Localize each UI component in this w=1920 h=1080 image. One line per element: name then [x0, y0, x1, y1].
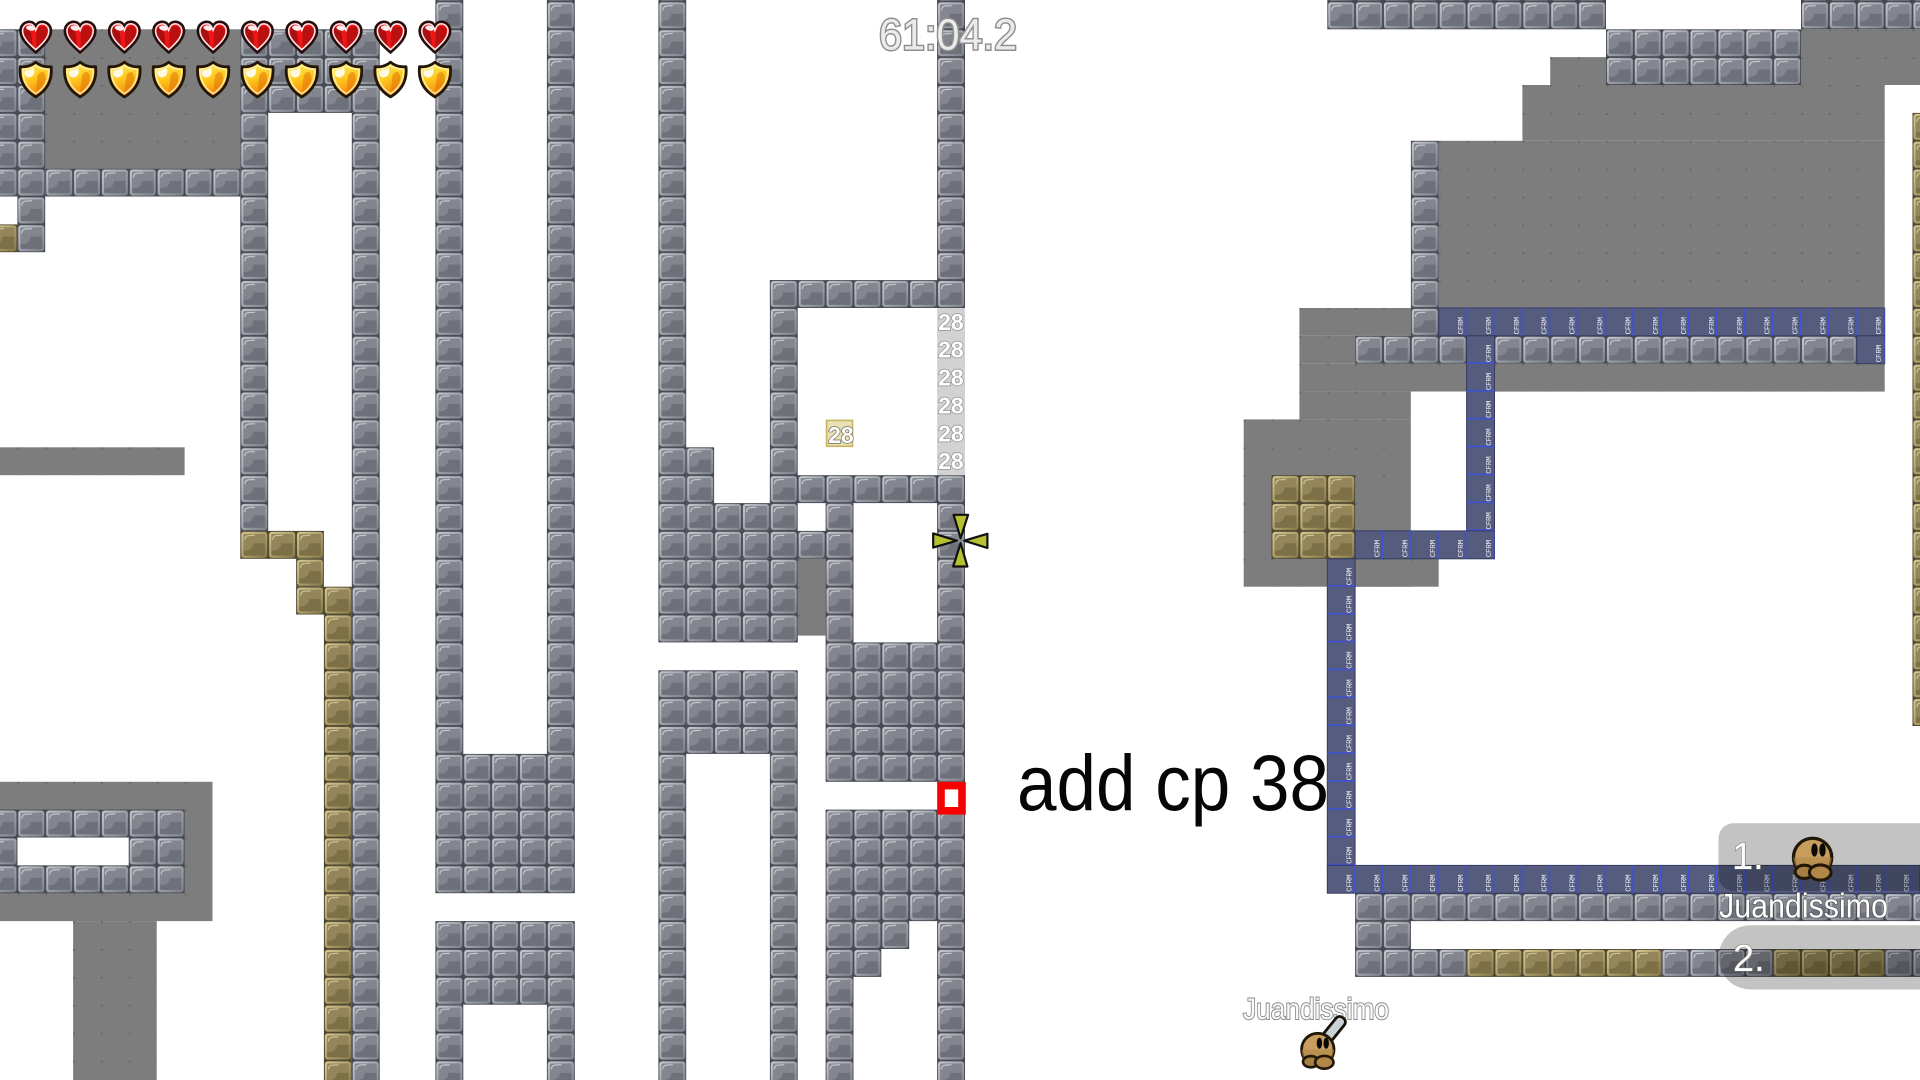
svg-text:CFRM: CFRM [1347, 874, 1355, 892]
svg-text:CFRM: CFRM [1542, 874, 1550, 892]
svg-text:CFRM: CFRM [1375, 874, 1383, 892]
svg-text:Juandissimo: Juandissimo [1719, 888, 1888, 926]
svg-text:1.: 1. [1732, 836, 1764, 878]
svg-text:CFRM: CFRM [1402, 874, 1410, 892]
svg-text:CFRM: CFRM [1347, 735, 1355, 753]
svg-text:CFRM: CFRM [1793, 317, 1801, 335]
svg-text:CFRM: CFRM [1486, 344, 1494, 362]
svg-text:Juandissimo: Juandissimo [1243, 993, 1389, 1026]
svg-text:CFRM: CFRM [1347, 846, 1355, 864]
svg-text:CFRM: CFRM [1681, 874, 1689, 892]
svg-text:28: 28 [938, 448, 964, 474]
svg-text:CFRM: CFRM [1430, 540, 1438, 558]
svg-text:28: 28 [938, 365, 964, 391]
svg-text:CFRM: CFRM [1653, 317, 1661, 335]
svg-text:CFRM: CFRM [1486, 484, 1494, 502]
svg-text:CFRM: CFRM [1347, 623, 1355, 641]
svg-text:CFRM: CFRM [1765, 317, 1773, 335]
svg-text:2.: 2. [1733, 938, 1765, 980]
svg-text:CFRM: CFRM [1347, 763, 1355, 781]
svg-text:CFRM: CFRM [1347, 679, 1355, 697]
svg-text:CFRM: CFRM [1486, 512, 1494, 530]
svg-text:CFRM: CFRM [1514, 317, 1522, 335]
svg-text:CFRM: CFRM [1737, 317, 1745, 335]
svg-text:CFRM: CFRM [1347, 790, 1355, 808]
svg-text:28: 28 [938, 420, 964, 446]
svg-text:28: 28 [938, 309, 964, 335]
svg-text:CFRM: CFRM [1876, 317, 1884, 335]
svg-text:CFRM: CFRM [1430, 874, 1438, 892]
svg-text:CFRM: CFRM [1598, 317, 1606, 335]
svg-text:CFRM: CFRM [1709, 317, 1717, 335]
svg-text:CFRM: CFRM [1820, 317, 1828, 335]
svg-text:CFRM: CFRM [1347, 567, 1355, 585]
svg-text:CFRM: CFRM [1625, 317, 1633, 335]
svg-text:CFRM: CFRM [1570, 317, 1578, 335]
svg-text:CFRM: CFRM [1848, 317, 1856, 335]
svg-text:CFRM: CFRM [1486, 372, 1494, 390]
svg-text:CFRM: CFRM [1486, 874, 1494, 892]
svg-text:CFRM: CFRM [1625, 874, 1633, 892]
svg-text:CFRM: CFRM [1486, 540, 1494, 558]
svg-text:CFRM: CFRM [1486, 428, 1494, 446]
svg-text:CFRM: CFRM [1570, 874, 1578, 892]
svg-text:CFRM: CFRM [1514, 874, 1522, 892]
svg-text:CFRM: CFRM [1347, 707, 1355, 725]
svg-text:CFRM: CFRM [1681, 317, 1689, 335]
svg-text:CFRM: CFRM [1458, 540, 1466, 558]
svg-text:CFRM: CFRM [1458, 874, 1466, 892]
svg-text:28: 28 [938, 393, 964, 419]
svg-text:CFRM: CFRM [1347, 818, 1355, 836]
svg-text:CFRM: CFRM [1486, 317, 1494, 335]
svg-text:CFRM: CFRM [1709, 874, 1717, 892]
svg-text:CFRM: CFRM [1486, 456, 1494, 474]
svg-text:CFRM: CFRM [1876, 344, 1884, 362]
svg-text:CFRM: CFRM [1347, 595, 1355, 613]
svg-text:CFRM: CFRM [1402, 540, 1410, 558]
svg-text:CFRM: CFRM [1486, 400, 1494, 418]
svg-text:CFRM: CFRM [1653, 874, 1661, 892]
svg-text:add cp 38: add cp 38 [1017, 738, 1329, 827]
svg-text:CFRM: CFRM [1598, 874, 1606, 892]
svg-text:28: 28 [938, 337, 964, 363]
svg-text:61:04.2: 61:04.2 [879, 11, 1017, 60]
svg-text:CFRM: CFRM [1458, 317, 1466, 335]
svg-text:CFRM: CFRM [1347, 651, 1355, 669]
svg-text:CFRM: CFRM [1542, 317, 1550, 335]
svg-text:CFRM: CFRM [1375, 540, 1383, 558]
svg-text:28: 28 [828, 422, 854, 448]
